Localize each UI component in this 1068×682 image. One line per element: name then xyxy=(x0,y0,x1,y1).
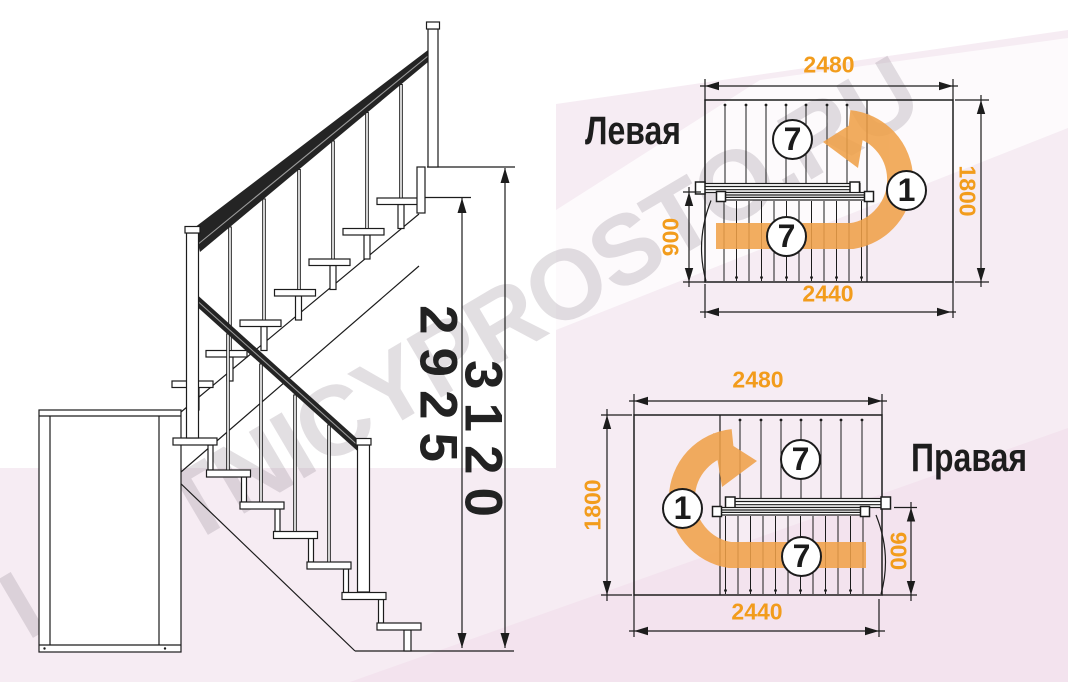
stair-drawing-sheet: LESTNICYPROSTO.RU xyxy=(0,0,1068,682)
plan-left-dim-top-2480: 2480 xyxy=(803,54,854,77)
plan-left-lower-steps-badge: 7 xyxy=(766,216,807,257)
plan-right-dim-right-900: 900 xyxy=(887,532,910,570)
plan-left-dim-bottom-2440: 2440 xyxy=(802,283,853,306)
plan-left-dim-right-1800: 1800 xyxy=(956,165,979,216)
plan-right-title: Правая xyxy=(911,438,1027,478)
plan-right-landing-badge: 1 xyxy=(662,488,703,529)
dim-3120-label: 3120 xyxy=(457,360,510,530)
plan-left-upper-steps-badge: 7 xyxy=(772,119,813,160)
plan-right-dim-top-2480: 2480 xyxy=(732,369,783,392)
plan-left-title: Левая xyxy=(585,111,681,151)
plan-right-lower-steps-badge: 7 xyxy=(781,536,822,577)
plan-right-dim-bottom-2440: 2440 xyxy=(731,601,782,624)
plan-left-dim-left-900: 900 xyxy=(660,218,683,256)
plan-right-upper-steps-badge: 7 xyxy=(780,439,821,480)
plan-left-landing-badge: 1 xyxy=(886,170,927,211)
drawing-linework xyxy=(0,0,1068,682)
plan-right-dim-left-1800: 1800 xyxy=(582,479,605,530)
